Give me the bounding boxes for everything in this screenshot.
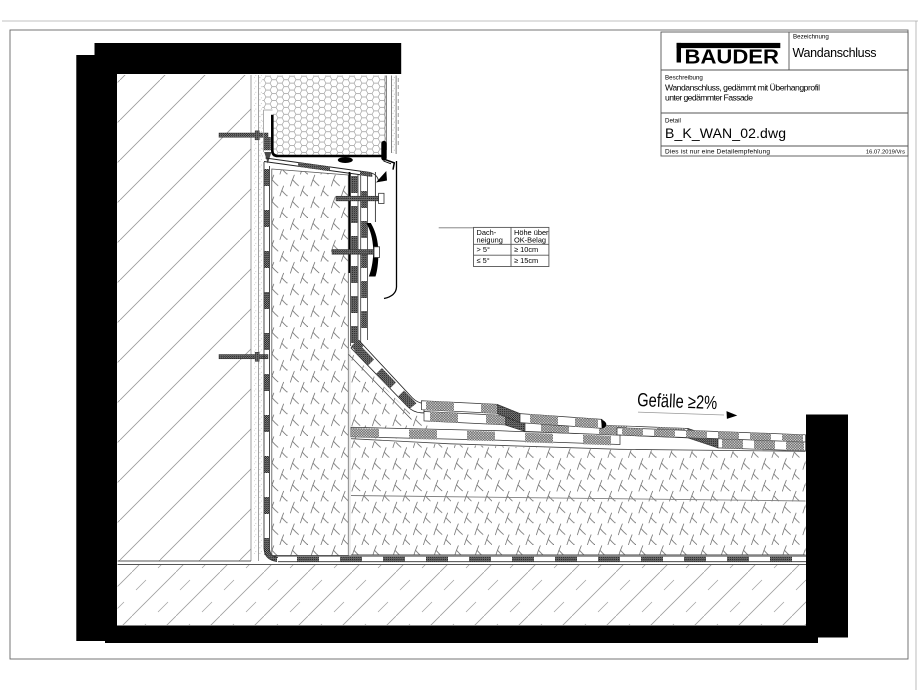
svg-text:Gefälle ≥2%: Gefälle ≥2% (637, 390, 718, 414)
svg-text:Dies ist nur eine Detailempfeh: Dies ist nur eine Detailempfehlung (665, 149, 770, 156)
svg-text:≤ 5°: ≤ 5° (477, 256, 490, 265)
svg-text:unter gedämmter Fassade: unter gedämmter Fassade (665, 93, 753, 103)
svg-text:Detail: Detail (665, 118, 681, 125)
svg-text:> 5°: > 5° (477, 245, 490, 254)
svg-text:B_K_WAN_02.dwg: B_K_WAN_02.dwg (665, 125, 786, 141)
svg-text:16.07.2019/Vrs: 16.07.2019/Vrs (866, 149, 905, 155)
svg-text:BAUDER: BAUDER (685, 46, 780, 69)
svg-text:Beschreibung: Beschreibung (665, 75, 703, 82)
svg-text:≥ 15cm: ≥ 15cm (514, 256, 538, 265)
svg-text:Bezeichnung: Bezeichnung (793, 34, 829, 41)
svg-text:neigung: neigung (477, 235, 503, 244)
svg-text:≥ 10cm: ≥ 10cm (514, 245, 538, 254)
svg-text:OK-Belag: OK-Belag (514, 235, 546, 244)
svg-text:Wandanschluss, gedämmt mit Übe: Wandanschluss, gedämmt mit Überhangprofi… (665, 83, 820, 93)
svg-text:Wandanschluss: Wandanschluss (793, 46, 877, 60)
